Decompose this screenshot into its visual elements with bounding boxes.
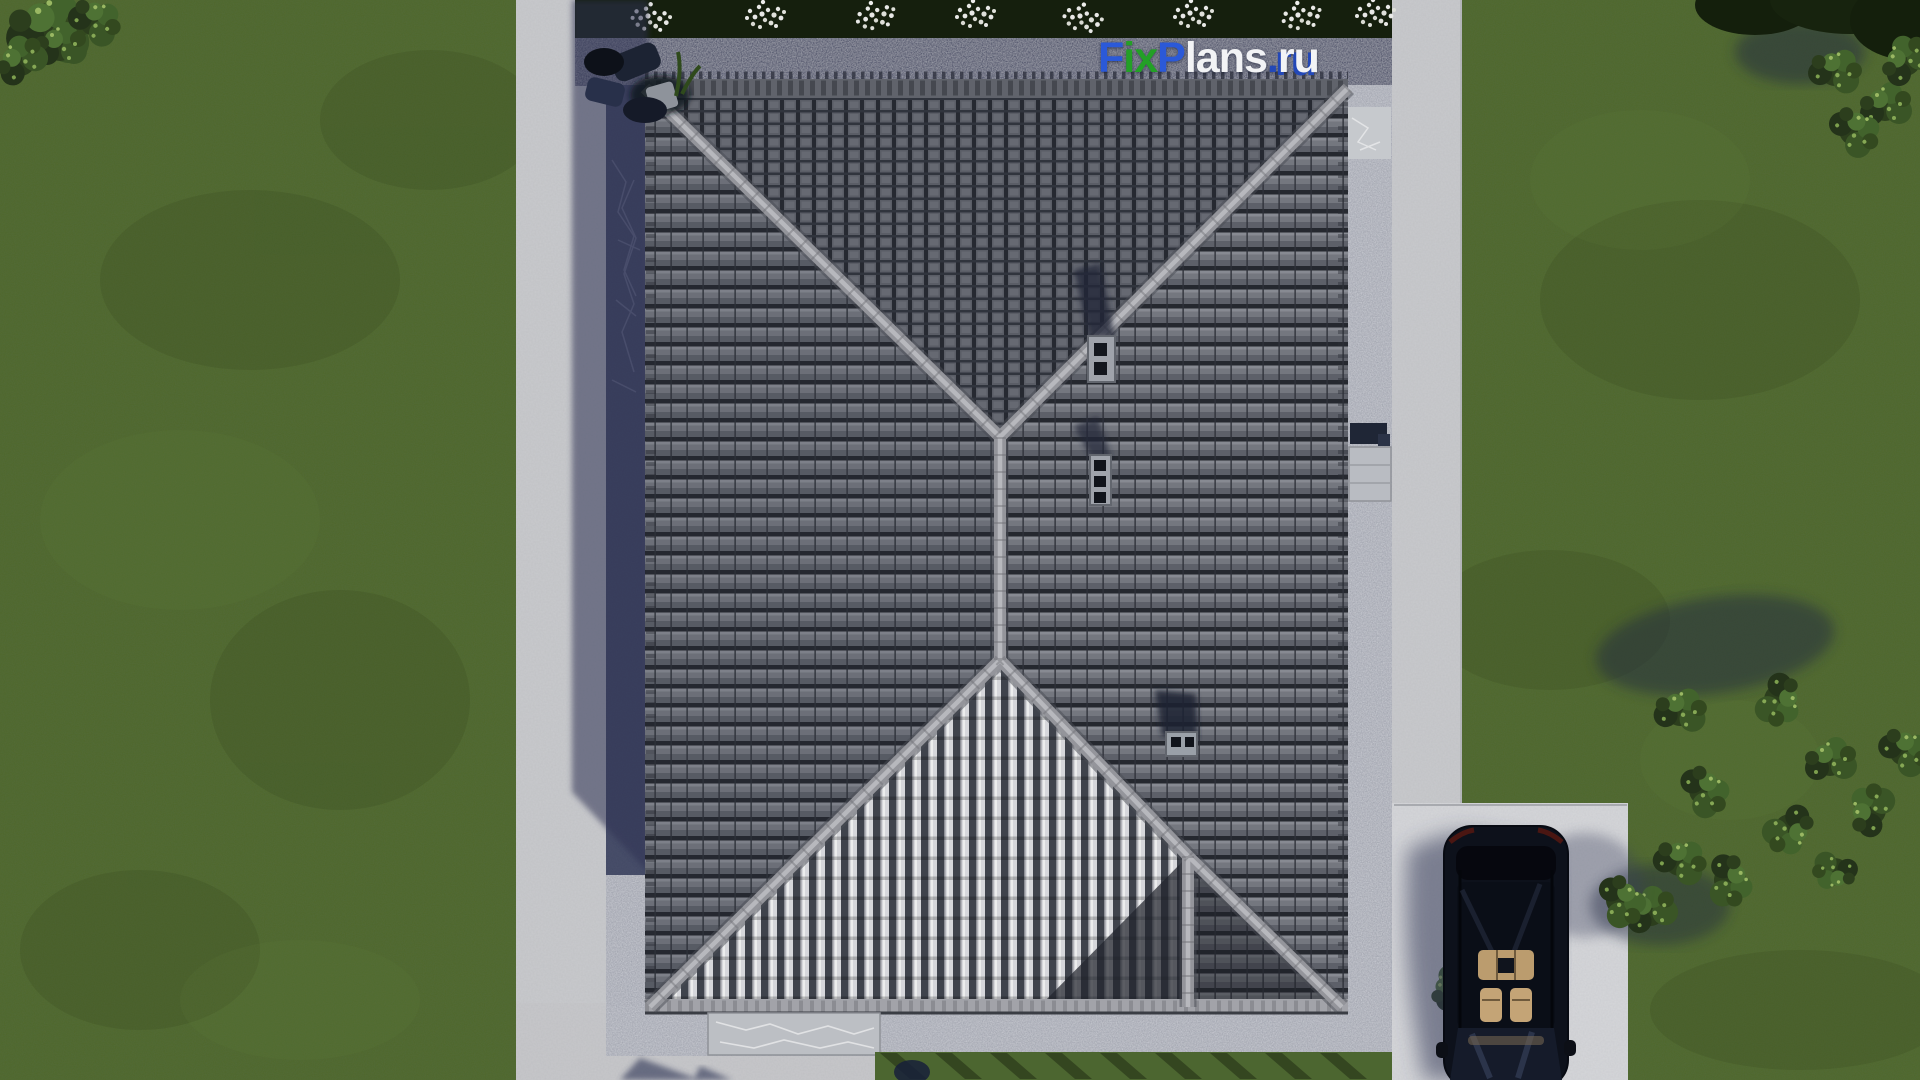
house-shadow (572, 0, 648, 872)
aerial-render-scene: FixPlans.ru (0, 0, 1920, 1080)
watermark-seg-f: F (1098, 34, 1123, 82)
car-dashboard (1468, 1036, 1544, 1045)
car-windshield (1450, 1028, 1562, 1080)
watermark-seg-ix: ix (1123, 34, 1157, 82)
flower-bed (575, 0, 1396, 38)
car-front-seat-right (1510, 988, 1532, 1022)
scene-canvas (0, 0, 1920, 1080)
car-mirror-right (1564, 1040, 1576, 1056)
car-rear-window (1456, 846, 1556, 880)
watermark-seg-lans: lans (1185, 34, 1267, 82)
watermark-seg-ru: ru (1278, 34, 1319, 82)
stone-patch-bottom (708, 1013, 880, 1055)
car (1406, 826, 1576, 1080)
car-console (1498, 958, 1514, 973)
roof-bottom-fascia (645, 999, 1348, 1013)
car-mirror-left (1436, 1042, 1448, 1058)
ac-unit (1349, 423, 1391, 501)
stone-patch-top (1348, 107, 1391, 159)
car-front-seat-left (1480, 988, 1502, 1022)
roof (645, 76, 1348, 1013)
stone-step (1349, 447, 1391, 501)
watermark-seg-dot: . (1267, 34, 1278, 82)
watermark-seg-p: P (1157, 34, 1185, 82)
watermark-fixplans: FixPlans.ru (1098, 34, 1319, 83)
